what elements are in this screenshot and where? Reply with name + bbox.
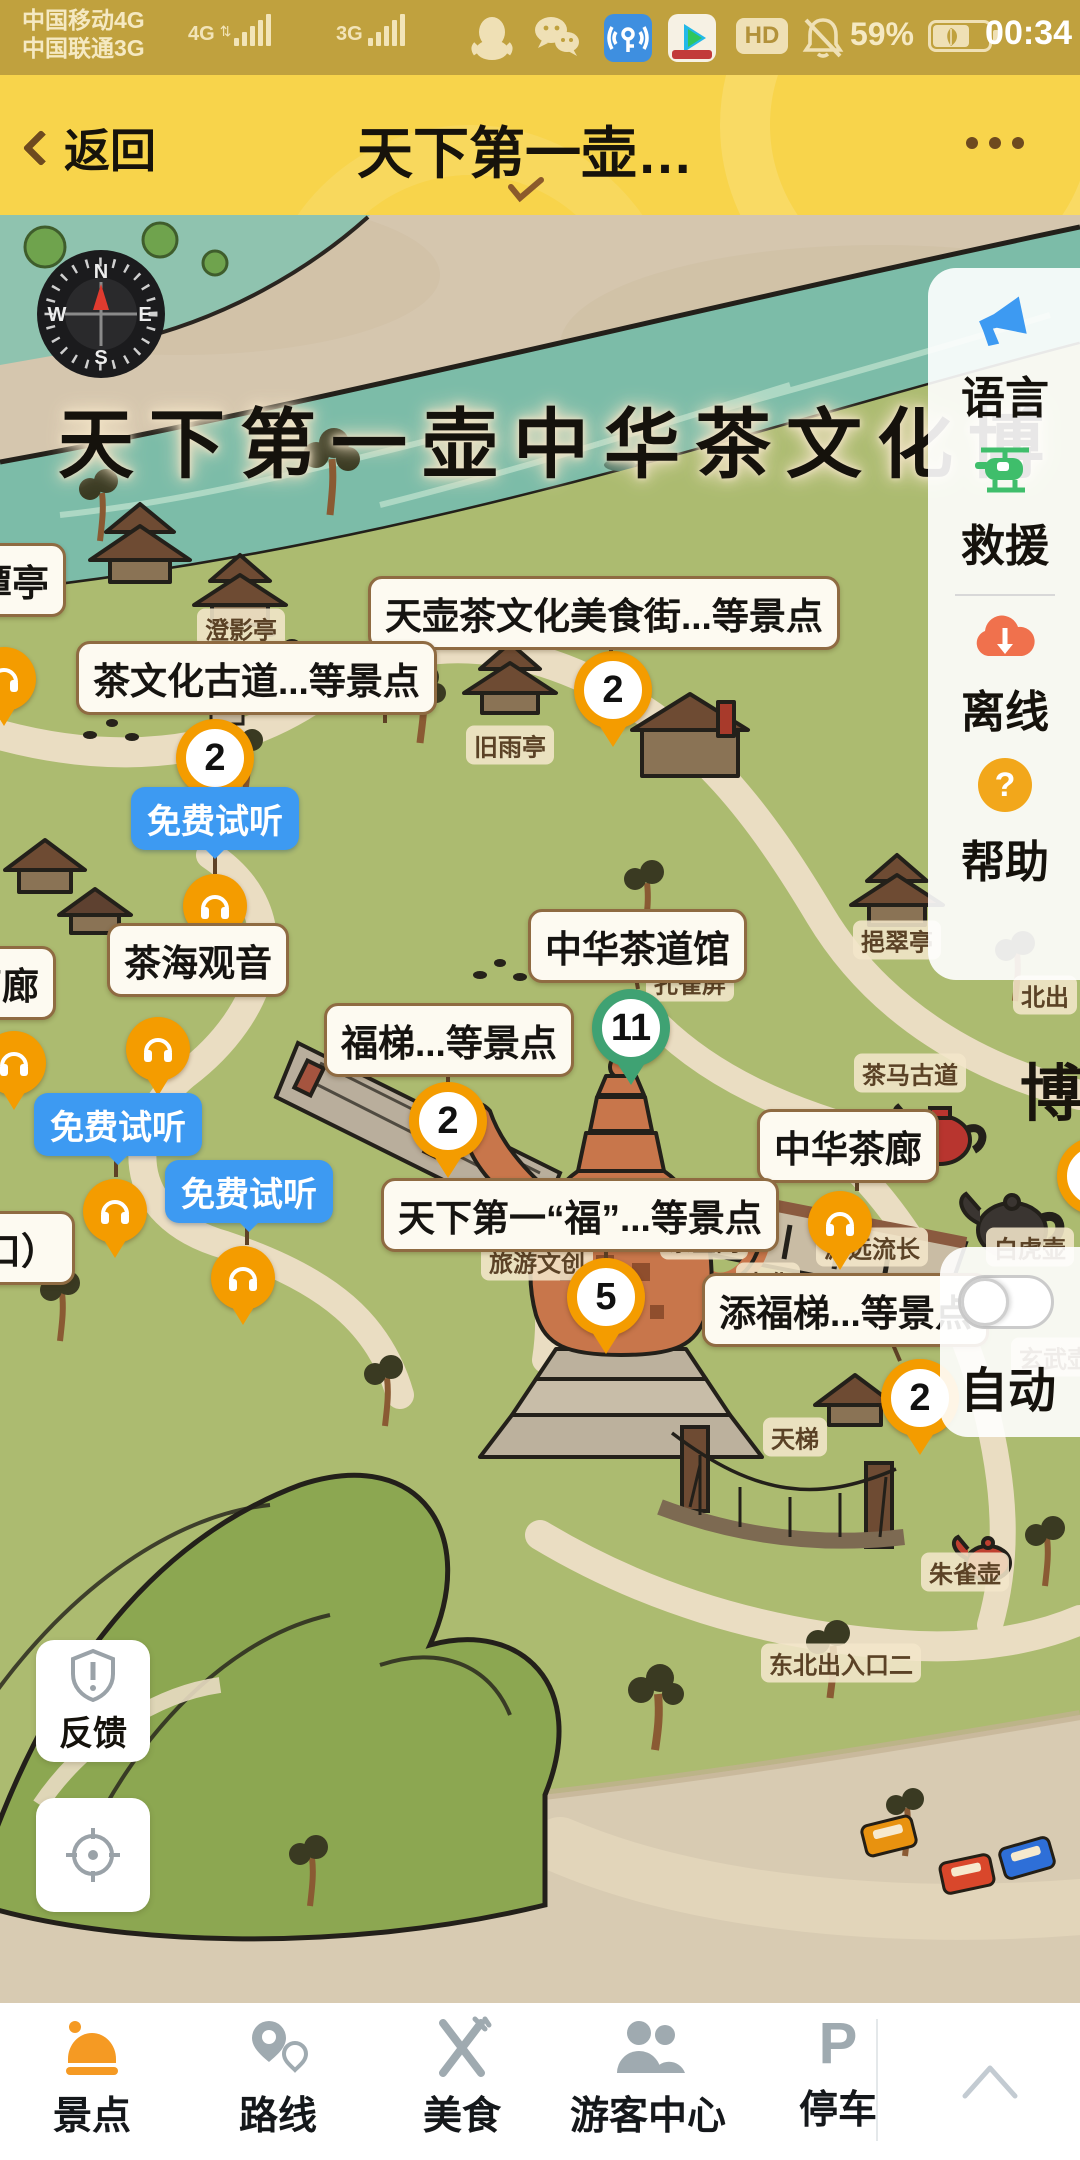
app-screen: 中国移动4G 中国联通3G 4G ⇅ 3G — [0, 0, 1080, 2160]
map-pin-count[interactable]: 2 — [406, 1082, 490, 1178]
signal-cluster-4g: 4G ⇅ — [188, 14, 271, 46]
rescue-button[interactable]: 救援 — [946, 442, 1064, 574]
free-trial-badge[interactable]: 免费试听 — [34, 1093, 202, 1156]
map-place-label: 东北出入口二 — [761, 1644, 921, 1683]
parking-icon: P — [819, 2015, 858, 2073]
scenic-icon — [53, 2015, 131, 2079]
auto-panel: 自动 — [940, 1247, 1080, 1437]
carrier-labels: 中国移动4G 中国联通3G — [22, 6, 145, 62]
free-trial-badge[interactable]: 免费试听 — [131, 787, 299, 850]
audio-guide-pin[interactable] — [82, 1179, 148, 1258]
toggle-knob — [961, 1278, 1009, 1326]
map-place-label: 旧雨亭 — [466, 726, 554, 765]
back-chevron-icon — [23, 130, 60, 167]
clock: 00:34 — [985, 14, 1072, 53]
feedback-button[interactable]: 反馈 — [36, 1640, 150, 1762]
poi-label[interactable]: 天壶茶文化美食街...等景点 — [368, 576, 840, 650]
route-pins-icon — [243, 2015, 313, 2079]
back-button[interactable]: 返回 — [28, 115, 156, 181]
map-tools-panel: 语言 救援 — [928, 268, 1080, 980]
panel-divider — [955, 594, 1055, 596]
title-checkmark-icon — [508, 177, 544, 203]
headphones-icon — [0, 664, 21, 694]
tencent-video-icon — [668, 14, 716, 62]
back-label: 返回 — [64, 115, 156, 181]
offline-button[interactable]: 离线 — [946, 612, 1064, 740]
poi-label[interactable]: 茗廊 — [0, 946, 56, 1020]
poi-label[interactable]: 中华茶廊 — [757, 1109, 939, 1183]
tab-parking[interactable]: P 停车 — [799, 2015, 877, 2135]
shield-alert-icon — [68, 1648, 118, 1702]
map-pin-count[interactable]: 2 — [571, 651, 655, 747]
status-bar: 中国移动4G 中国联通3G 4G ⇅ 3G — [0, 0, 1080, 75]
poi-label[interactable]: 潭亭 — [0, 543, 66, 617]
audio-guide-pin[interactable] — [0, 647, 37, 726]
auto-toggle[interactable] — [958, 1275, 1054, 1329]
megaphone-icon — [974, 296, 1036, 350]
question-icon: ? — [976, 756, 1034, 814]
hd-badge: HD — [736, 18, 788, 54]
poi-label[interactable]: 茶海观音 — [107, 923, 289, 997]
audio-guide-pin[interactable] — [125, 1017, 191, 1096]
tab-scenic-spots[interactable]: 景点 — [53, 2015, 131, 2141]
map-place-label: 北出 — [1013, 976, 1077, 1015]
cloud-download-icon — [972, 612, 1038, 664]
svg-text:?: ? — [995, 766, 1016, 804]
fork-knife-icon — [427, 2015, 497, 2079]
collapse-button[interactable] — [900, 2003, 1080, 2160]
battery-percent: 59% — [850, 16, 914, 53]
crosshair-icon — [63, 1825, 123, 1885]
locate-button[interactable] — [36, 1798, 150, 1912]
map-canvas[interactable]: 天下第一壶中华茶文化博 博 N S E W 澄影亭 旧雨亭 孔雀屏 挹翠亭 北出… — [0, 215, 1080, 2160]
carrier-1: 中国移动4G — [22, 6, 145, 34]
chevron-up-icon — [957, 2060, 1023, 2104]
wechat-icon — [532, 14, 582, 60]
nav-decoration — [720, 75, 1080, 215]
svg-text:W: W — [48, 304, 67, 326]
map-place-label: 茶马古道 — [854, 1054, 966, 1093]
more-options-button[interactable] — [966, 137, 1024, 149]
map-big-title: 天下第一壶中华茶文化博 — [58, 383, 1059, 493]
poi-label[interactable]: 中华茶道馆 — [528, 909, 747, 983]
svg-text:S: S — [94, 347, 107, 369]
signal-cluster-3g: 3G — [336, 14, 405, 46]
map-place-label: 朱雀壶 — [921, 1553, 1009, 1592]
svg-text:E: E — [138, 304, 151, 326]
auto-label: 自动 — [960, 1351, 1080, 1421]
tabbar-divider — [876, 2019, 878, 2141]
svg-text:N: N — [94, 261, 108, 283]
map-pin-partial[interactable] — [1054, 1137, 1080, 1233]
tab-routes[interactable]: 路线 — [239, 2015, 317, 2141]
free-trial-badge[interactable]: 免费试听 — [165, 1160, 333, 1223]
poi-label[interactable]: 入口） — [0, 1211, 75, 1285]
helicopter-icon — [973, 442, 1037, 498]
map-place-label: 天梯 — [763, 1418, 827, 1457]
tab-food[interactable]: 美食 — [423, 2015, 501, 2141]
tab-visitor-center[interactable]: 游客中心 — [570, 2015, 726, 2141]
map-ghost-char: 博 — [1020, 1043, 1080, 1133]
wifi-key-icon — [604, 14, 652, 62]
feedback-label: 反馈 — [59, 1706, 127, 1755]
nav-bar: 返回 天下第一壶… — [0, 75, 1080, 215]
map-pin-count[interactable]: 11 — [589, 989, 673, 1085]
bottom-tab-bar: 景点 路线 美食 游客 — [0, 2003, 1080, 2160]
battery-icon — [928, 20, 992, 52]
carrier-2: 中国联通3G — [22, 34, 145, 62]
help-button[interactable]: ? 帮助 — [946, 756, 1064, 890]
poi-label[interactable]: 福梯...等景点 — [324, 1003, 574, 1077]
audio-guide-pin[interactable] — [210, 1246, 276, 1325]
poi-label[interactable]: 天下第一“福”...等景点 — [381, 1178, 779, 1252]
map-pin-count[interactable]: 5 — [564, 1258, 648, 1354]
compass-icon: N S E W — [35, 248, 167, 380]
people-icon — [609, 2015, 687, 2079]
poi-label[interactable]: 茶文化古道...等景点 — [76, 641, 437, 715]
language-button[interactable]: 语言 — [946, 296, 1064, 426]
bell-muted-icon — [800, 14, 846, 60]
qq-icon — [470, 14, 514, 62]
audio-guide-pin[interactable] — [807, 1191, 873, 1270]
